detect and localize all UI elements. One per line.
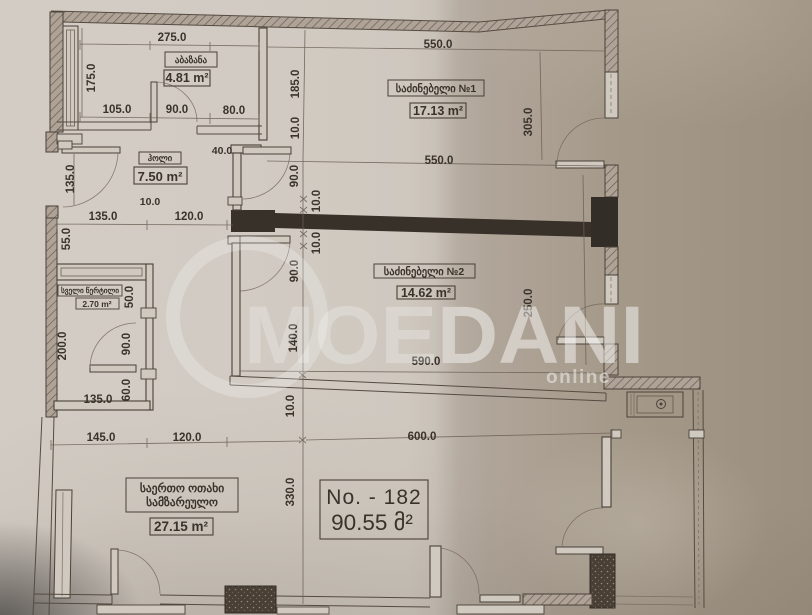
svg-text:135.0: 135.0	[84, 394, 113, 406]
svg-text:550.0: 550.0	[425, 155, 454, 167]
svg-text:40.0: 40.0	[212, 145, 233, 157]
svg-text:135.0: 135.0	[89, 211, 118, 223]
svg-text:10.0: 10.0	[140, 196, 161, 208]
svg-text:10.0: 10.0	[311, 232, 323, 254]
svg-text:90.0: 90.0	[121, 333, 133, 355]
svg-text:200.0: 200.0	[57, 332, 69, 361]
svg-text:600.0: 600.0	[408, 431, 437, 443]
svg-text:90.55 მ²: 90.55 მ²	[331, 510, 413, 535]
svg-text:90.0: 90.0	[289, 165, 301, 187]
svg-text:550.0: 550.0	[424, 39, 453, 51]
svg-text:No. - 182: No. - 182	[326, 486, 421, 509]
svg-text:55.0: 55.0	[61, 228, 73, 250]
svg-text:online: online	[546, 367, 611, 388]
svg-text:50.0: 50.0	[124, 286, 136, 308]
svg-text:7.50 m²: 7.50 m²	[138, 169, 183, 184]
svg-text:2.70 m²: 2.70 m²	[82, 299, 111, 309]
svg-text:აბაზანა: აბაზანა	[175, 55, 208, 65]
svg-text:27.15 m²: 27.15 m²	[154, 519, 209, 534]
svg-text:120.0: 120.0	[173, 432, 202, 444]
svg-text:სამზარეულო: სამზარეულო	[146, 495, 219, 510]
svg-text:145.0: 145.0	[87, 432, 116, 444]
svg-text:120.0: 120.0	[175, 211, 204, 223]
svg-text:4.81 m²: 4.81 m²	[165, 71, 208, 85]
svg-text:135.0: 135.0	[65, 165, 77, 194]
svg-text:17.13 m²: 17.13 m²	[413, 104, 463, 118]
svg-text:305.0: 305.0	[523, 108, 535, 137]
svg-text:სველი წერტილი: სველი წერტილი	[61, 286, 119, 296]
svg-text:90.0: 90.0	[166, 104, 188, 116]
svg-text:275.0: 275.0	[158, 32, 187, 44]
svg-text:80.0: 80.0	[223, 105, 245, 117]
svg-text:10.0: 10.0	[290, 117, 302, 139]
svg-text:10.0: 10.0	[311, 190, 323, 212]
svg-text:ჰოლი: ჰოლი	[148, 153, 173, 164]
svg-text:საძინებელი №1: საძინებელი №1	[396, 82, 477, 95]
svg-text:175.0: 175.0	[86, 64, 98, 93]
svg-text:60.0: 60.0	[121, 379, 133, 401]
svg-text:105.0: 105.0	[103, 104, 132, 116]
svg-text:330.0: 330.0	[285, 478, 297, 507]
svg-text:10.0: 10.0	[285, 395, 297, 417]
svg-text:185.0: 185.0	[290, 70, 302, 99]
svg-text:საძინებელი №2: საძინებელი №2	[384, 265, 465, 278]
svg-text:საერთო ოთახი: საერთო ოთახი	[140, 481, 224, 496]
